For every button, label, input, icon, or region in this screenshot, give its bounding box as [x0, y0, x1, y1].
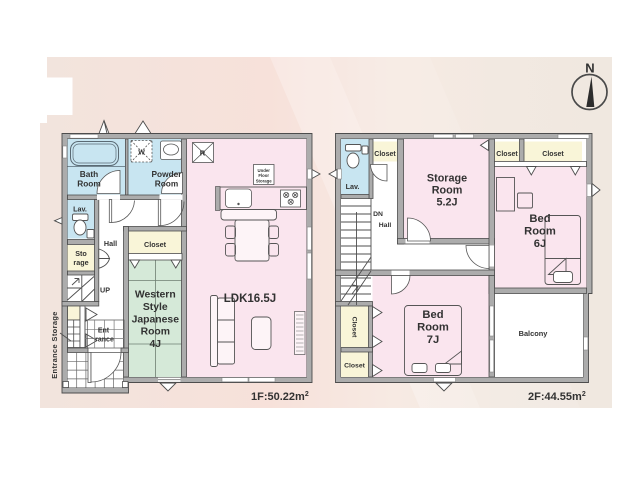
svg-text:Closet: Closet	[351, 317, 358, 339]
svg-text:R: R	[200, 149, 206, 158]
svg-text:Closet: Closet	[496, 151, 518, 158]
svg-text:Closet: Closet	[542, 151, 564, 158]
svg-text:UP: UP	[100, 286, 110, 295]
svg-text:1F:50.22m2: 1F:50.22m2	[251, 391, 309, 403]
svg-text:LDK16.5J: LDK16.5J	[224, 293, 276, 305]
svg-text:Closet: Closet	[374, 151, 396, 158]
svg-text:Hall: Hall	[104, 239, 117, 248]
svg-text:Hall: Hall	[379, 222, 392, 229]
svg-text:Balcony: Balcony	[519, 329, 549, 338]
svg-text:Closet: Closet	[344, 363, 366, 370]
svg-text:2F:44.55m2: 2F:44.55m2	[528, 391, 586, 403]
svg-text:N: N	[585, 61, 594, 76]
svg-text:DN: DN	[373, 211, 383, 218]
svg-text:BathRoom: BathRoom	[77, 169, 101, 189]
svg-text:Lav.: Lav.	[73, 205, 87, 214]
svg-text:Closet: Closet	[144, 240, 167, 249]
svg-text:PowderRoom: PowderRoom	[152, 169, 183, 189]
svg-text:W: W	[138, 150, 145, 157]
svg-text:Entrance Storage: Entrance Storage	[50, 311, 59, 379]
svg-text:Storage: Storage	[73, 249, 88, 267]
svg-text:Lav.: Lav.	[346, 182, 360, 191]
